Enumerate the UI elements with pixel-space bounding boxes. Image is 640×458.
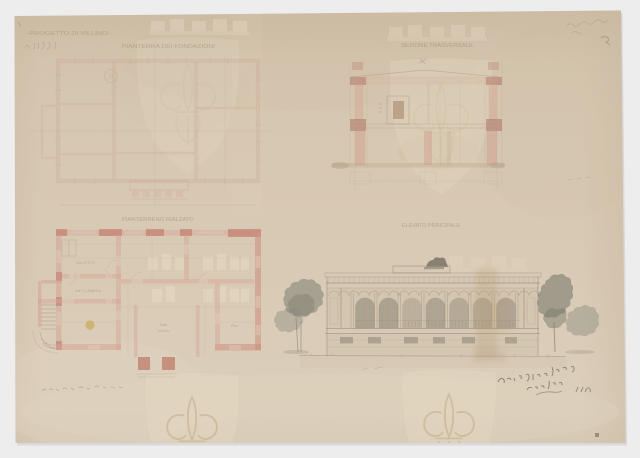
- svg-text:SALOTTO: SALOTTO: [76, 261, 96, 265]
- svg-text:Sala: Sala: [160, 323, 167, 327]
- svg-text:SEZIONE TRASVERSALE: SEZIONE TRASVERSALE: [401, 43, 474, 49]
- svg-text:Pian: Pian: [231, 324, 238, 328]
- svg-text:ELEVATO PRINCIPALE: ELEVATO PRINCIPALE: [402, 223, 461, 229]
- svg-text:Terrazzo: Terrazzo: [157, 329, 169, 333]
- svg-text:-PROGETTO DI VILLINO-: -PROGETTO DI VILLINO-: [27, 31, 110, 37]
- svg-text:PIANTERRA DEI FONDAZIONI: PIANTERRA DEI FONDAZIONI: [122, 44, 215, 50]
- svg-text:PIANTERRENO RIALZATO: PIANTERRENO RIALZATO: [122, 217, 194, 223]
- svg-text:ANTICAMERA: ANTICAMERA: [75, 289, 102, 293]
